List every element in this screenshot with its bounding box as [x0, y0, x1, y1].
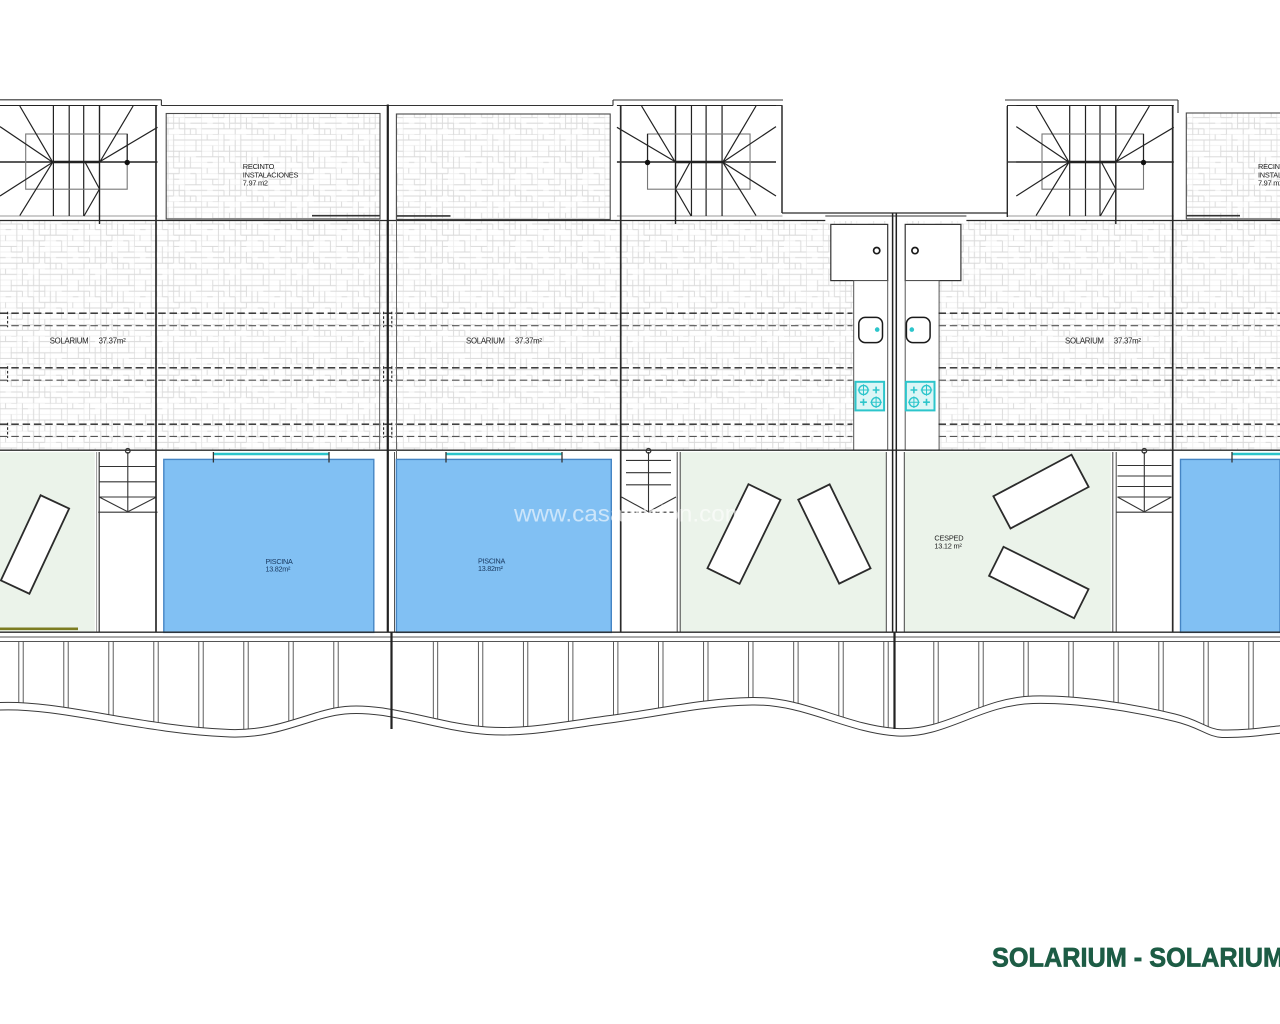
svg-text:37.37m²: 37.37m²: [515, 337, 543, 346]
svg-text:13.82m²: 13.82m²: [266, 565, 291, 574]
svg-text:SOLARIUM: SOLARIUM: [1065, 337, 1104, 346]
svg-text:13.82m²: 13.82m²: [478, 564, 503, 573]
svg-text:SOLARIUM - SOLARIUM: SOLARIUM - SOLARIUM: [992, 943, 1280, 973]
svg-text:13.12 m²: 13.12 m²: [934, 541, 962, 550]
svg-text:SOLARIUM: SOLARIUM: [50, 337, 89, 346]
svg-text:www.casailusion.com: www.casailusion.com: [513, 501, 745, 527]
svg-text:37.37m²: 37.37m²: [99, 337, 127, 346]
svg-text:7.97 m2: 7.97 m2: [243, 178, 268, 187]
svg-text:37.37m²: 37.37m²: [1114, 337, 1142, 346]
svg-text:7.97 m2: 7.97 m2: [1258, 178, 1280, 187]
svg-text:SOLARIUM: SOLARIUM: [466, 337, 505, 346]
